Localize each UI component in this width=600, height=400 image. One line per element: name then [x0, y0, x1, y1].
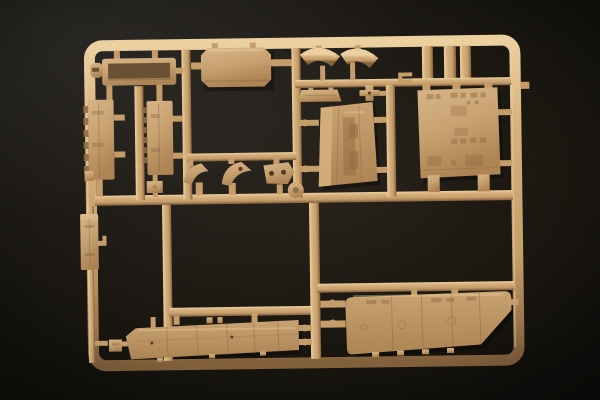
part-nose-plate	[297, 89, 341, 102]
sprue-shape	[466, 297, 476, 301]
sprue-shape	[460, 93, 465, 98]
sprue-shape	[366, 300, 376, 304]
part-mast-bracket	[80, 214, 107, 270]
sprue-shape	[97, 178, 103, 197]
part-small-square-block	[147, 181, 163, 193]
part-small-clip	[398, 72, 412, 83]
sprue-shape	[260, 351, 266, 355]
sprue-shape	[470, 93, 477, 98]
runner-v6	[460, 46, 472, 82]
sprue-shape	[349, 151, 358, 169]
sprue-shape	[84, 142, 89, 149]
sprue-shape	[143, 157, 148, 163]
part-bracket-b	[221, 162, 251, 186]
part-side-skirt	[345, 291, 512, 357]
photo-stage	[0, 0, 600, 400]
sprue-shape	[450, 93, 457, 98]
sprue-shape	[191, 62, 202, 69]
sprue-shape	[435, 94, 440, 99]
part-fender-right	[344, 50, 374, 63]
sprue-shape	[84, 225, 94, 228]
runner-bracket-sub	[187, 152, 296, 162]
sprue-shape	[427, 156, 441, 166]
sprue-shape	[277, 184, 283, 194]
sprue-shape	[174, 316, 180, 325]
sprue-shape	[221, 162, 251, 186]
sprue-shape	[143, 147, 148, 153]
sprue-shape	[196, 182, 203, 195]
runner-left-cell	[134, 86, 145, 200]
part-tray-box	[90, 58, 176, 86]
sprue-shape	[83, 106, 88, 113]
sprue-shape	[207, 317, 213, 323]
sprue-shape	[431, 298, 441, 302]
sprue-shape	[422, 349, 429, 354]
sprue-shape	[83, 118, 88, 125]
sprue-shape	[188, 159, 193, 166]
sprue-shape	[143, 137, 148, 143]
sprue-shape	[151, 148, 160, 152]
part-glacis-plate	[318, 102, 378, 187]
sprue-shape	[270, 59, 292, 66]
sprue-shape	[102, 236, 106, 242]
sprue-shape	[398, 73, 402, 84]
runner-b1-stub	[87, 206, 94, 215]
part-bracket-plate	[263, 162, 294, 184]
part-stowage-box	[201, 47, 272, 87]
sprue-shape	[304, 54, 336, 62]
sprue-shape	[121, 341, 128, 346]
part-small-block	[109, 340, 122, 352]
sprue-shape	[470, 138, 476, 143]
sprue-shape	[397, 351, 404, 356]
sprue-shape	[83, 130, 88, 137]
sprue-shape	[92, 68, 99, 72]
sprue-shape	[209, 354, 215, 358]
sprue-photo	[0, 0, 600, 400]
sprue-shape	[175, 68, 183, 74]
runner-b3	[309, 203, 321, 359]
sprue-shape	[263, 162, 294, 184]
sprue-shape	[480, 92, 485, 97]
sprue-shape	[114, 114, 125, 120]
frame-outer-gate-stub	[520, 82, 529, 89]
sprue-assembly	[78, 39, 533, 366]
sprue-shape	[345, 111, 365, 113]
sprue-shape	[454, 128, 468, 136]
sprue-shape	[478, 174, 490, 191]
sprue-shape	[451, 106, 467, 116]
sprue-shape	[426, 94, 433, 99]
sprue-shape	[92, 111, 104, 115]
runner-v4	[422, 46, 434, 82]
sprue-shape	[85, 171, 94, 181]
runner-c-left	[169, 306, 313, 317]
sprue-shape	[114, 151, 125, 157]
sprue-shape	[92, 143, 104, 147]
part-hull-side-right	[142, 101, 174, 175]
sprue-shape	[112, 343, 119, 346]
sprue-shape	[228, 159, 234, 164]
sprue-shape	[106, 85, 112, 102]
sprue-shape	[84, 154, 89, 161]
sprue-shape	[157, 358, 163, 362]
sprue-shape	[447, 348, 454, 353]
sprue-shape	[153, 193, 158, 197]
sprue-shape	[147, 101, 174, 175]
sprue-shape	[465, 154, 483, 166]
sprue-shape	[142, 117, 147, 123]
sprue-shape	[85, 253, 95, 256]
sprue-shape	[510, 299, 518, 305]
sprue-shape	[273, 155, 279, 164]
sprue-shape	[156, 84, 162, 103]
sprue-shape	[172, 116, 183, 122]
sprue-shape	[109, 340, 122, 352]
sprue-shape	[218, 317, 223, 323]
sprue-shape	[142, 107, 147, 113]
sprue-shape	[446, 298, 454, 302]
part-fender-left	[304, 49, 336, 61]
runner-v3	[386, 85, 397, 197]
sprue-shape	[320, 66, 325, 81]
part-cross	[359, 85, 379, 101]
sprue-shape	[350, 62, 355, 80]
runner-v5	[444, 46, 457, 82]
sprue-shape	[95, 341, 108, 346]
sprue-shape	[142, 127, 147, 133]
sprue-shape	[172, 153, 183, 159]
sprue-shape	[381, 300, 389, 304]
sprue-shape	[451, 139, 457, 144]
sprue-shape	[151, 114, 160, 118]
sprue-shape	[374, 117, 387, 123]
sprue-shape	[372, 352, 379, 357]
sprue-shape	[251, 313, 257, 323]
sprue-shape	[428, 175, 440, 192]
sprue-shape	[460, 139, 466, 144]
sprue-shape	[480, 137, 486, 142]
sprue-shape	[349, 124, 358, 138]
